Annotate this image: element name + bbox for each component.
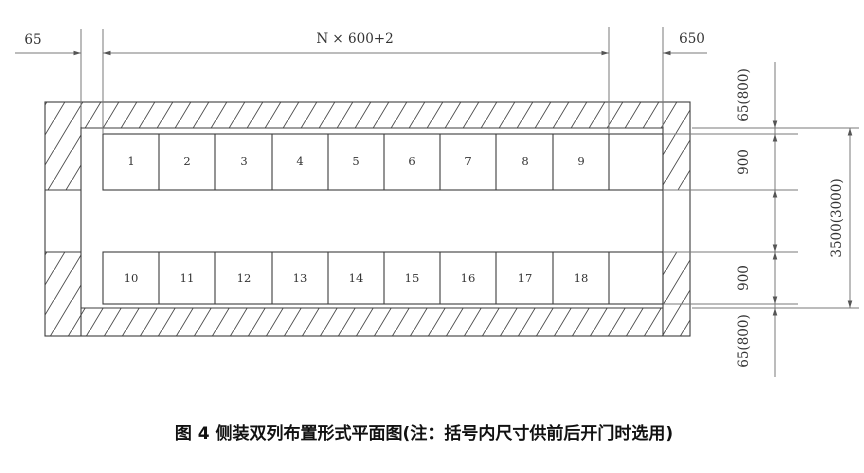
wall-bottom-hatch xyxy=(81,308,663,336)
cell-label: 3 xyxy=(240,154,247,168)
wall-left-upper-hatch xyxy=(45,102,81,190)
cabinet-numbers-top-row: 1 2 3 4 5 6 7 8 9 xyxy=(127,154,584,168)
cell-label: 13 xyxy=(293,271,308,285)
dim-label-row-depth-bottom: 900 xyxy=(736,265,752,291)
dim-label-top-wall-clearance: 65(800) xyxy=(736,68,752,121)
wall-right-upper-hatch xyxy=(663,102,690,190)
cell-label: 12 xyxy=(237,271,252,285)
cabinet-rows: 1 2 3 4 5 6 7 8 9 10 11 12 13 14 15 16 1… xyxy=(103,134,663,304)
cell-label: 10 xyxy=(124,271,139,285)
cell-label: 18 xyxy=(574,271,589,285)
wall-left-lower-hatch xyxy=(45,252,81,336)
dim-label-panel-span: N × 600+2 xyxy=(316,31,393,47)
dim-label-right-reserve: 650 xyxy=(679,31,705,47)
wall-outer-outline xyxy=(45,102,690,336)
dimension-right: 65(800) 900 900 65(800) 3500(3000) xyxy=(663,62,859,377)
cell-label: 1 xyxy=(127,154,134,168)
cell-label: 15 xyxy=(405,271,420,285)
cell-label: 4 xyxy=(296,154,303,168)
cell-label: 7 xyxy=(464,154,471,168)
wall-right-lower-hatch xyxy=(663,252,690,336)
cell-label: 8 xyxy=(521,154,528,168)
cabinet-dividers-bottom-row xyxy=(159,252,609,304)
cabinet-numbers-bottom-row: 10 11 12 13 14 15 16 17 18 xyxy=(124,271,589,285)
cell-label: 5 xyxy=(352,154,359,168)
cell-label: 6 xyxy=(408,154,415,168)
cabinet-dividers-top-row xyxy=(159,134,609,190)
cell-label: 17 xyxy=(518,271,533,285)
cell-label: 2 xyxy=(183,154,190,168)
dim-label-room-depth-total: 3500(3000) xyxy=(829,178,845,257)
dim-label-left-clearance: 65 xyxy=(24,32,41,48)
cell-label: 11 xyxy=(180,271,195,285)
cell-label: 9 xyxy=(577,154,584,168)
wall-top-hatch xyxy=(81,102,663,128)
dim-label-row-depth-top: 900 xyxy=(736,149,752,175)
floor-plan-figure: 1 2 3 4 5 6 7 8 9 10 11 12 13 14 15 16 1… xyxy=(0,0,864,473)
room-walls xyxy=(45,102,690,336)
dim-label-bottom-wall-clearance: 65(800) xyxy=(736,314,752,367)
cell-label: 14 xyxy=(349,271,364,285)
cell-label: 16 xyxy=(461,271,476,285)
figure-caption: 图 4 侧装双列布置形式平面图(注：括号内尺寸供前后开门时选用) xyxy=(175,423,673,444)
